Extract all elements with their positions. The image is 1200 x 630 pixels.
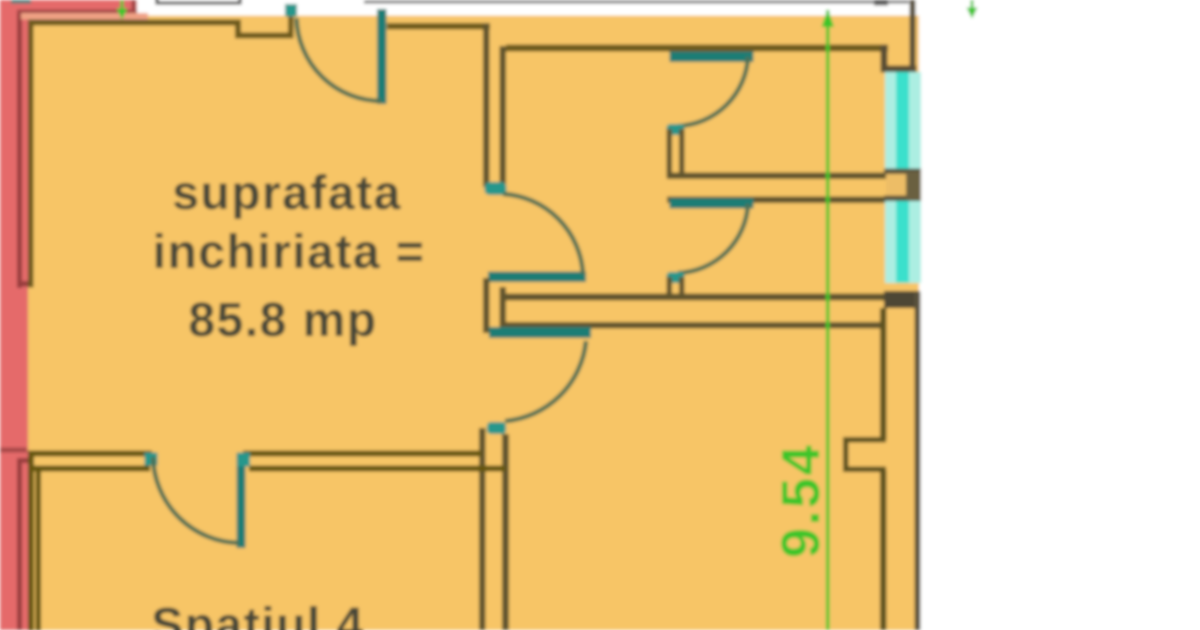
svg-text:suprafata: suprafata: [172, 167, 402, 220]
svg-text:9.54: 9.54: [771, 443, 831, 558]
svg-text:85.8 mp: 85.8 mp: [188, 294, 377, 347]
svg-text:inchiriata =: inchiriata =: [153, 226, 426, 279]
svg-text:Spatiul 4: Spatiul 4: [151, 599, 365, 630]
